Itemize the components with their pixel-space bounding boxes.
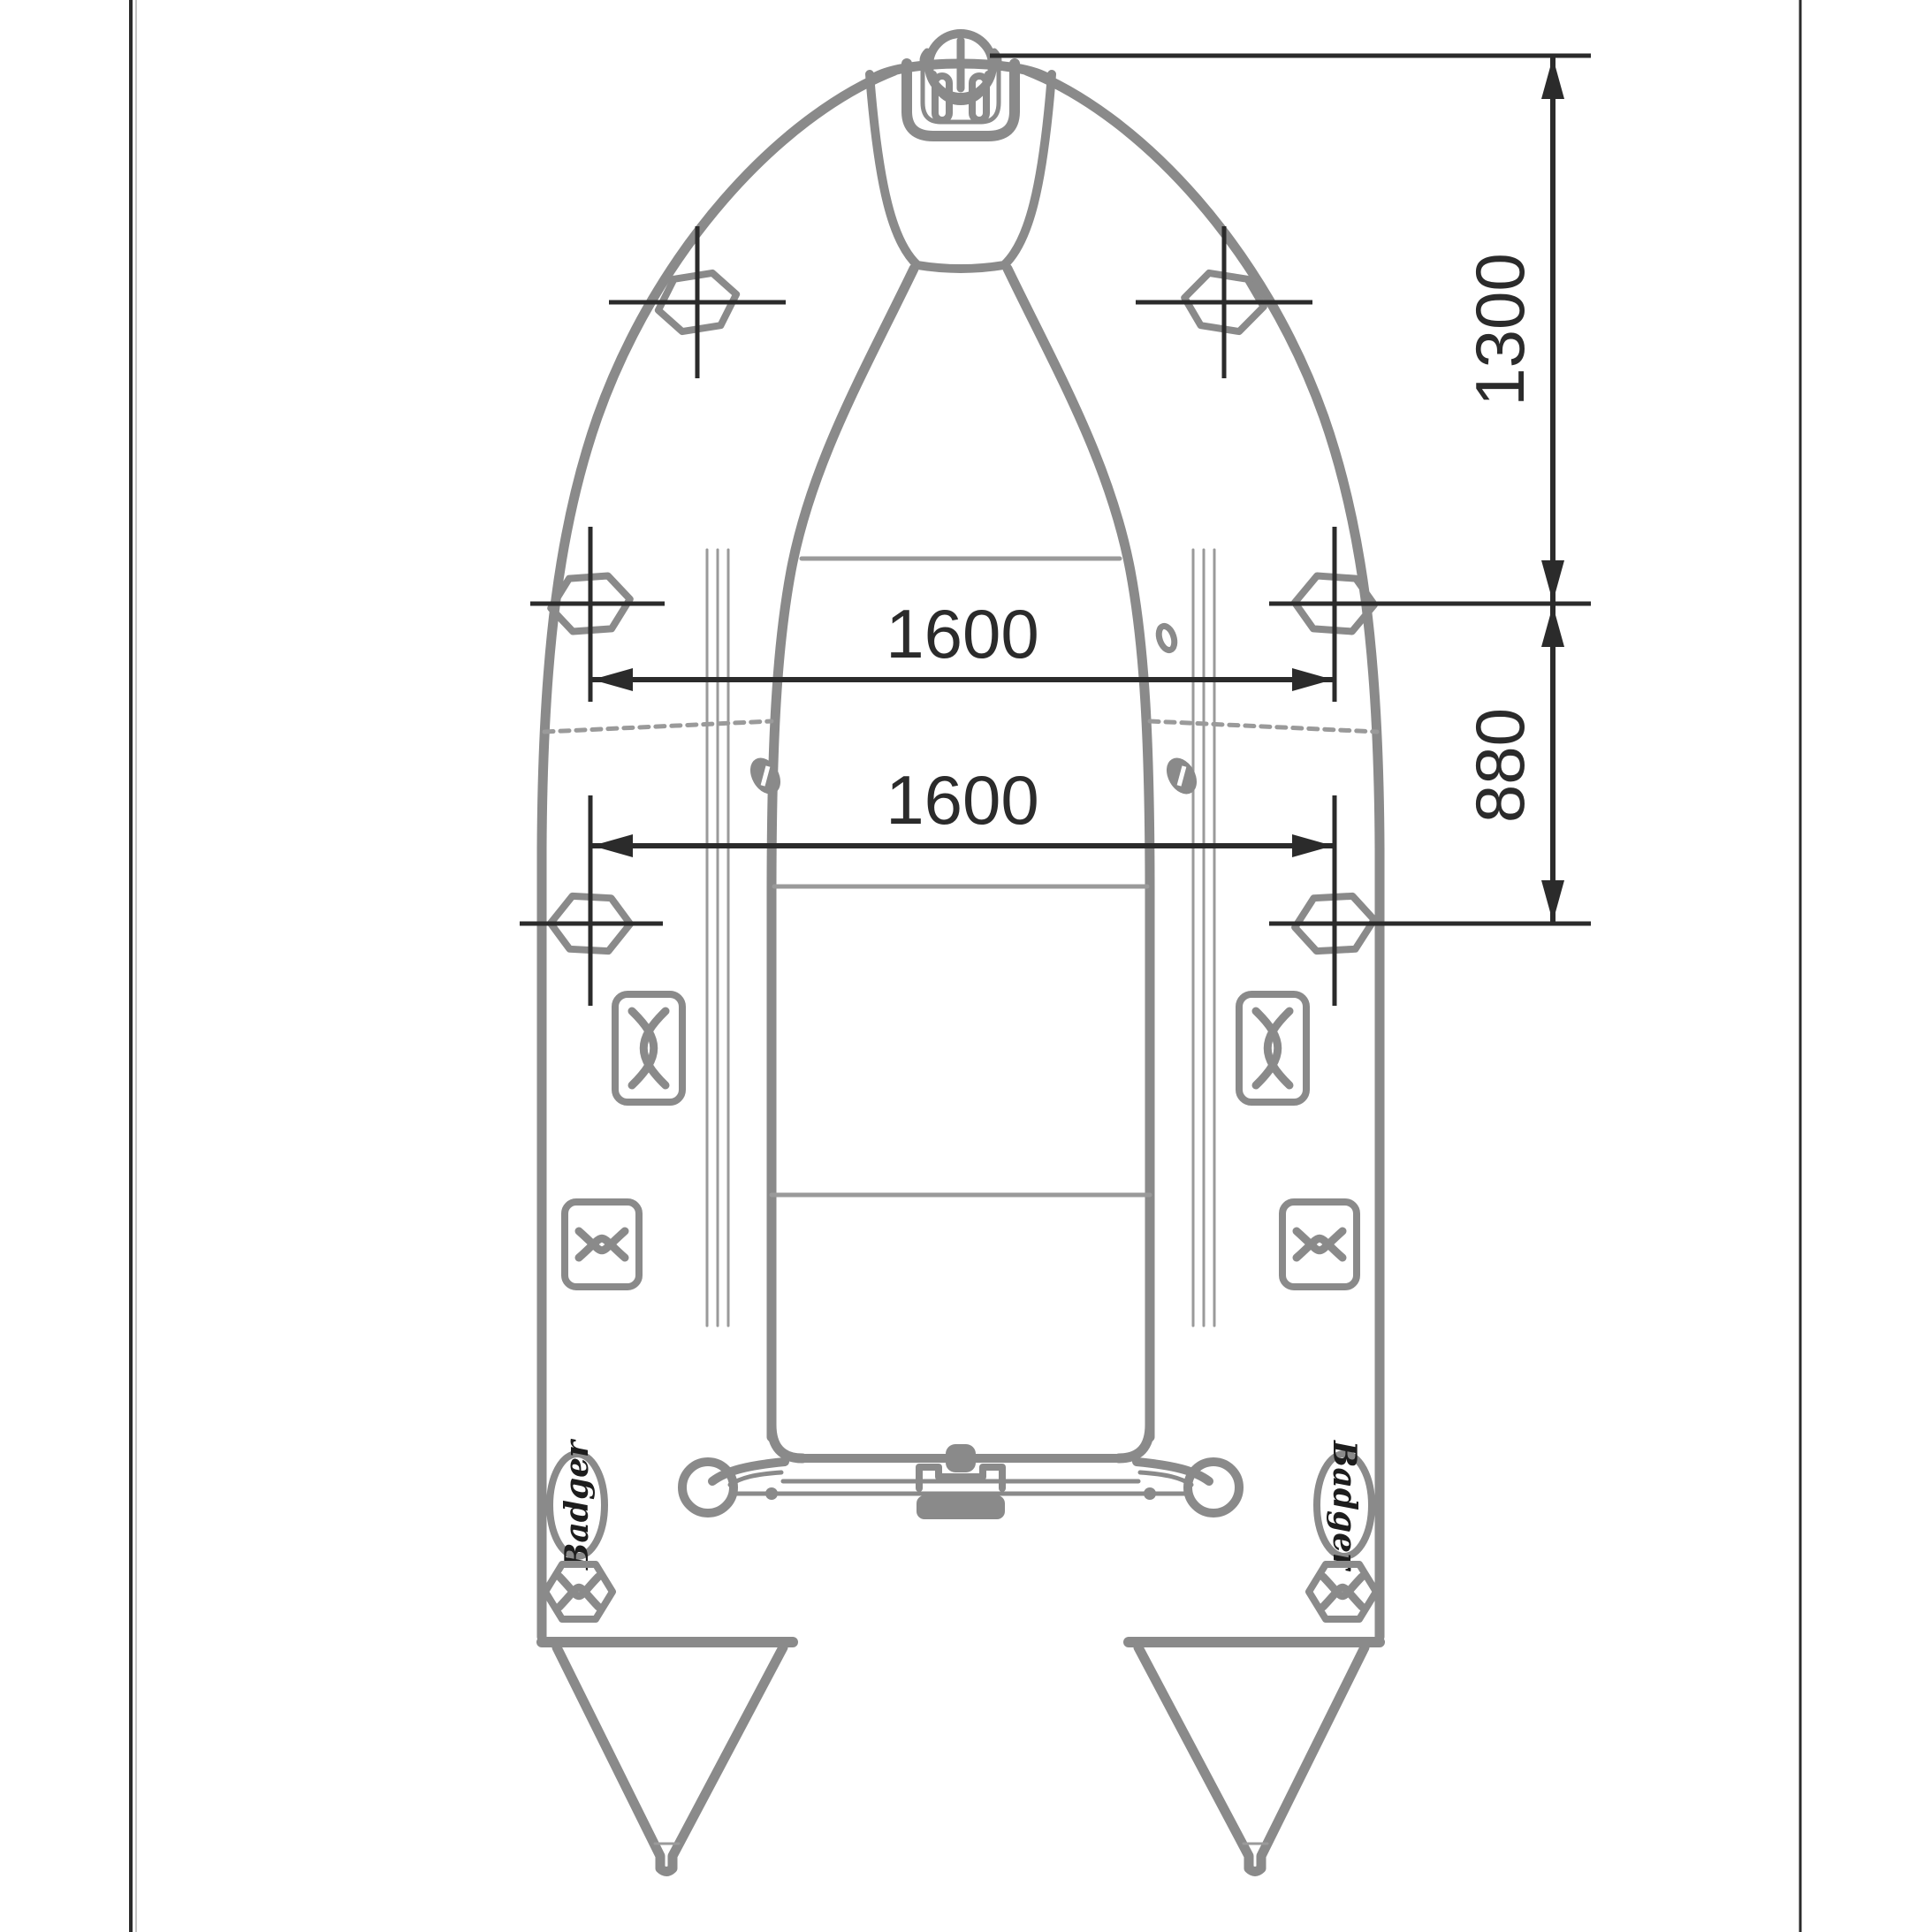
cockpit-edge-right [1008,269,1150,1437]
dimension-label-1300: 1300 [1461,253,1539,407]
transom-node-right [1144,1487,1156,1500]
crosshair-bow-left [609,226,786,378]
transom-assembly [682,1425,1239,1519]
bow-carry-handle [907,34,1015,136]
stern-cone-left [557,1647,783,1872]
lace-handle-left-icon [615,994,682,1102]
dimension-label-880: 880 [1461,708,1539,823]
rubstrip-lines-right [1193,550,1214,1326]
seam-dashed-right [1150,721,1377,732]
arrowhead-down-mid [1541,560,1564,602]
stern-hex-fittings [545,1564,1376,1619]
lace-handle-right-icon [1239,994,1306,1102]
stern-hex-left-icon [545,1564,612,1619]
motor-mount-knob [946,1444,976,1472]
transom-corner-left [772,1425,802,1458]
bowtie-fitting-right-icon [1282,1202,1357,1287]
arrowhead-down-bottom [1541,880,1564,922]
dimension-label-1600-lower: 1600 [886,761,1039,839]
transom-corner-right [1119,1425,1150,1458]
stern-hex-right-icon [1309,1564,1376,1619]
transom-end-ring-left-icon [682,1462,734,1513]
badger-logo-left: Badger [550,1438,605,1571]
page-frame [131,0,1800,1932]
dimension-label-1600-upper: 1600 [886,595,1039,673]
bowtie-fitting-left-icon [565,1202,639,1287]
boat-technical-drawing: Badger Badger [0,0,1932,1932]
arrowhead-up-top [1541,57,1564,99]
arrowhead-left-2 [592,834,633,857]
crosshair-bow-right [1136,226,1312,378]
oar-lock-grommet-left-icon [744,752,787,799]
cockpit-edge-left [772,269,914,1437]
rubstrip-lines-left [707,550,728,1326]
oar-lock-grommet-right-icon [1160,752,1203,799]
seam-dashed-left [544,721,772,732]
transom-node-left [765,1487,778,1500]
crosshairs [520,226,1591,1006]
transom-scarf-left-inner [730,1472,781,1485]
arrowhead-right-2 [1292,834,1333,857]
badger-logo-right: Badger [1317,1440,1372,1572]
transom-scarf-right-inner [1140,1472,1191,1485]
hull [542,64,1380,1872]
stern-cone-right [1138,1647,1365,1872]
side-fittings [565,994,1357,1287]
drawing-page: Badger Badger [0,0,1932,1932]
arrowhead-up-mid [1541,605,1564,647]
small-grommet-icon [1156,624,1177,652]
badger-logo-left-text: Badger [559,1438,596,1571]
arrowhead-right-1 [1292,668,1333,691]
arrowhead-left-1 [592,668,633,691]
badger-logo-right-text: Badger [1326,1440,1363,1572]
motor-mount-pad [917,1495,1005,1519]
transom-end-ring-right-icon [1188,1462,1239,1513]
